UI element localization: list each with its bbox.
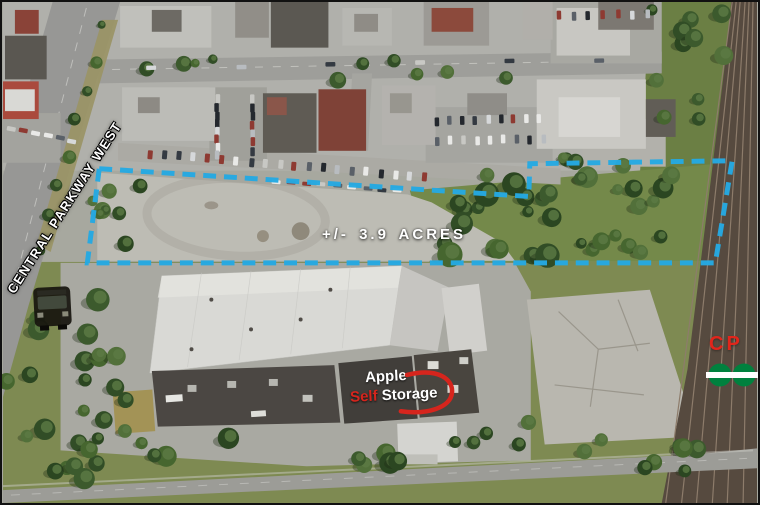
car — [475, 136, 480, 145]
car — [393, 170, 399, 179]
car — [600, 10, 605, 19]
car — [321, 163, 327, 172]
aerial-scene — [2, 2, 758, 503]
car — [488, 136, 493, 145]
car — [511, 114, 516, 123]
car — [616, 9, 621, 18]
car — [630, 11, 635, 20]
car — [325, 62, 335, 67]
dirt-pile — [204, 201, 218, 209]
car — [262, 159, 268, 168]
car — [472, 116, 477, 125]
logo-swoosh-icon — [349, 363, 464, 425]
car — [527, 136, 532, 145]
acreage-label: +/- 3.9 ACRES — [322, 226, 466, 243]
car — [237, 65, 247, 70]
car — [572, 12, 577, 21]
car — [486, 115, 491, 124]
car — [504, 59, 514, 64]
car — [499, 114, 504, 123]
car — [233, 156, 239, 165]
car — [250, 129, 254, 138]
car — [448, 136, 453, 145]
car — [515, 135, 520, 144]
car — [176, 151, 182, 160]
car — [415, 60, 425, 65]
car — [250, 104, 254, 113]
car — [147, 150, 153, 159]
car — [278, 160, 284, 169]
car — [594, 58, 604, 63]
car — [215, 127, 219, 136]
car — [250, 121, 254, 130]
car — [214, 103, 218, 112]
dirt-pile — [257, 230, 269, 242]
car — [422, 172, 428, 181]
car — [645, 9, 650, 18]
car — [524, 114, 529, 123]
car — [216, 94, 220, 103]
car — [379, 169, 385, 178]
car — [536, 114, 541, 123]
car — [363, 167, 369, 176]
apple-self-storage-logo: Apple Self Storage — [349, 363, 464, 425]
car — [461, 135, 466, 144]
car — [190, 152, 196, 161]
aerial-property-map: CENTRAL PARKWAY WEST +/- 3.9 ACRES CP Ap… — [0, 0, 760, 505]
car — [215, 119, 219, 128]
car — [585, 11, 590, 20]
car — [250, 94, 254, 103]
car — [251, 137, 255, 146]
car — [251, 112, 255, 121]
car — [349, 167, 355, 176]
car — [291, 162, 297, 171]
car — [435, 137, 440, 146]
dirt-pile — [292, 222, 310, 240]
car — [406, 171, 412, 180]
car — [447, 116, 452, 125]
car — [219, 155, 225, 164]
car — [435, 117, 440, 126]
car — [557, 11, 562, 20]
car — [204, 153, 210, 162]
car — [460, 116, 465, 125]
car — [307, 162, 313, 171]
car — [249, 158, 255, 167]
cp-railway-label: CP — [709, 333, 743, 356]
car — [162, 150, 168, 159]
car — [214, 134, 218, 143]
car — [250, 147, 254, 156]
car — [334, 165, 340, 174]
car — [542, 135, 547, 144]
car — [216, 143, 220, 152]
car — [501, 134, 506, 143]
truck — [251, 410, 266, 417]
car — [146, 65, 156, 70]
car — [215, 151, 219, 160]
truck — [166, 394, 183, 402]
